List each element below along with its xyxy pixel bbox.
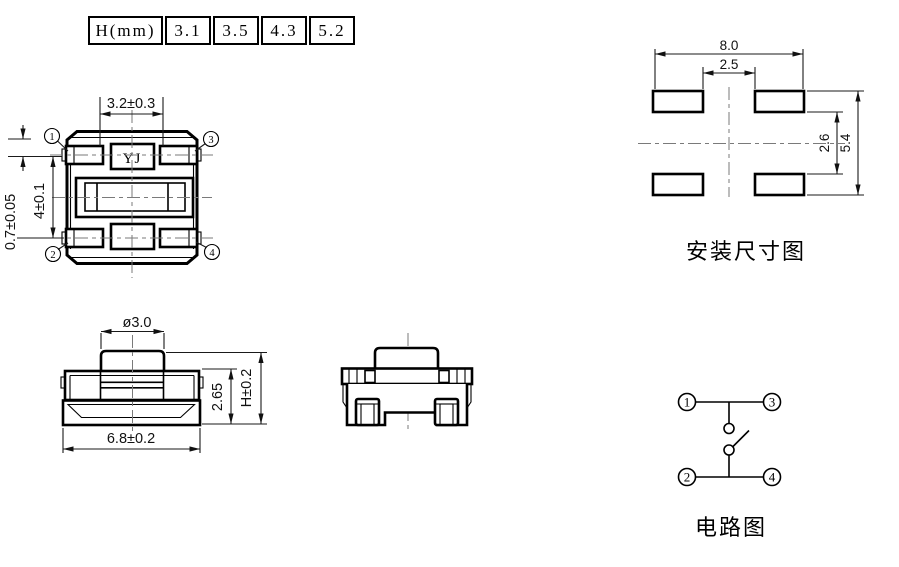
front-view-drawing: ø3.0 6.8±0.2 2.65 H±0.2 (61, 315, 267, 453)
pin-number-callout: 1 (49, 132, 54, 143)
pin-number: 3 (769, 395, 776, 410)
pin-number: 2 (684, 470, 691, 485)
circuit-title: 电路图 (695, 515, 767, 540)
dimension-body-width: 6.8±0.2 (63, 428, 200, 453)
switch-stem-side (375, 348, 438, 369)
circuit-diagram: 1 3 2 4 电路图 (679, 394, 781, 541)
dimension-label: 6.8±0.2 (107, 431, 155, 447)
dimension-label: 2.5 (720, 57, 739, 72)
datasheet-drawing-page: H(mm) 3.1 3.5 4.3 5.2 (0, 0, 899, 567)
dimension-label: 5.4 (838, 133, 853, 152)
side-view-drawing (342, 333, 472, 433)
mounting-pattern-drawing: 8.0 2.5 2.6 5.4 安装尺 (638, 38, 864, 264)
pin-number-callout: 2 (50, 250, 55, 261)
dimension-label: 8.0 (720, 38, 739, 53)
dimension-label: 3.2±0.3 (107, 96, 155, 112)
dimension-pad-gap-width: 2.5 (703, 57, 755, 89)
pin-number: 1 (684, 395, 691, 410)
top-view-drawing: YJ 3.2±0.3 4±0 (3, 96, 220, 278)
mounting-view-title: 安装尺寸图 (686, 239, 806, 264)
technical-drawing-svg: YJ 3.2±0.3 4±0 (0, 0, 899, 567)
dimension-pad-height: 0.7±0.05 (3, 125, 31, 250)
dimension-label: 0.7±0.05 (3, 194, 19, 250)
pin-number-callout: 4 (209, 248, 215, 259)
switch-lever (733, 431, 749, 447)
pin-number: 4 (769, 470, 776, 485)
dimension-label: H±0.2 (239, 369, 255, 408)
dimension-label: 2.65 (210, 383, 226, 411)
dimension-label: ø3.0 (122, 315, 151, 331)
dimension-body-height: 2.65 (202, 369, 267, 424)
dimension-label: 2.6 (817, 134, 832, 153)
pin-number-callout: 3 (208, 135, 213, 146)
dimension-label: 4±0.1 (32, 183, 48, 219)
